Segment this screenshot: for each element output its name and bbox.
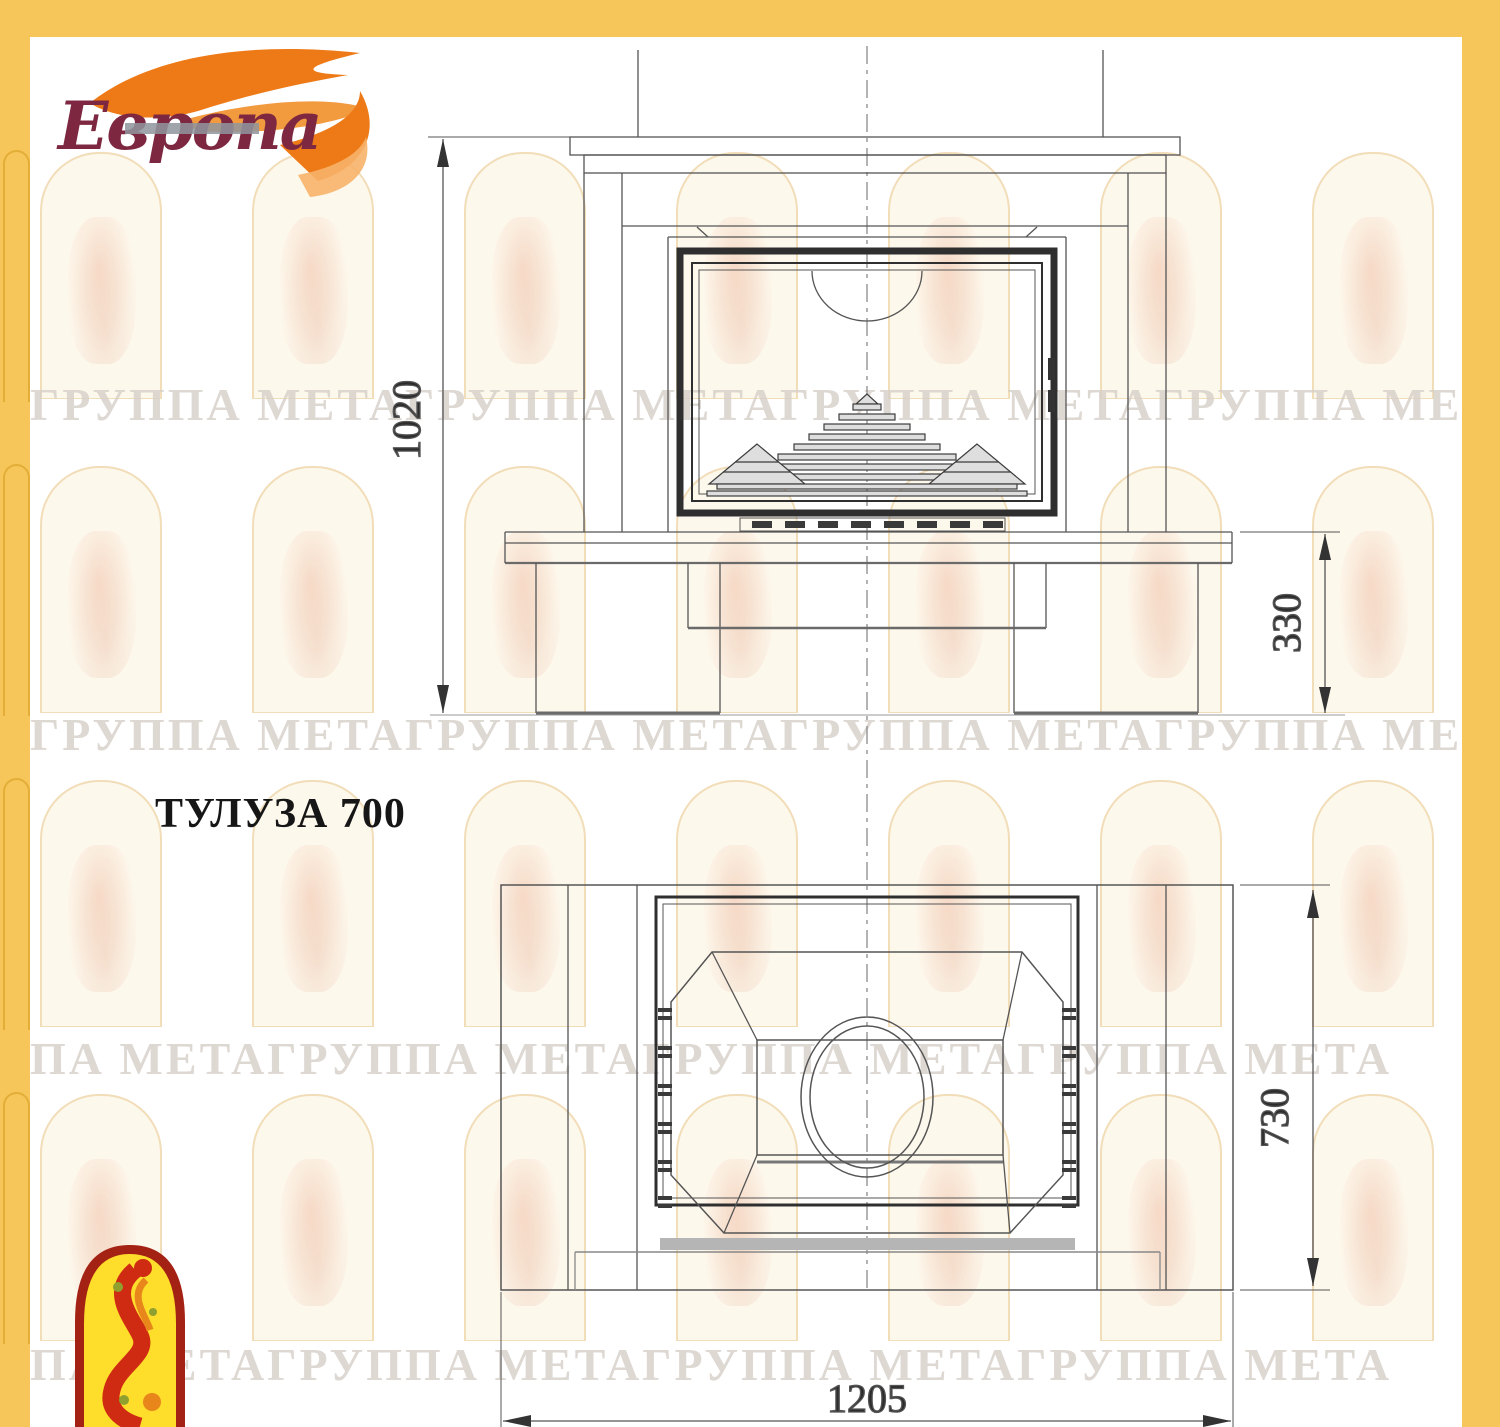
watermark-arch [1312, 1094, 1434, 1341]
border-arch-ornament [3, 778, 30, 1030]
watermark-arch [252, 1094, 374, 1341]
watermark-arch [1100, 152, 1222, 399]
watermark-arch [464, 466, 586, 713]
watermark-arch [888, 466, 1010, 713]
watermark-arch [1312, 152, 1434, 399]
border-arch-ornament [3, 464, 30, 716]
page-border-right [1462, 0, 1500, 1427]
border-arch-ornament [3, 150, 30, 402]
watermark-arch [464, 1094, 586, 1341]
watermark-arch [464, 152, 586, 399]
page-border-top [0, 0, 1500, 37]
watermark-text-row: ПА МЕТАГРУППА МЕТАГРУППА МЕТАГРУППА МЕТА [30, 1032, 1462, 1084]
watermark-arch [252, 466, 374, 713]
watermark-arch [676, 466, 798, 713]
watermark-arch [1312, 466, 1434, 713]
watermark-arch [1100, 1094, 1222, 1341]
watermark-arch [888, 780, 1010, 1027]
watermark-arch [676, 152, 798, 399]
watermark-arch [1100, 780, 1222, 1027]
watermark-layer: ГРУППА МЕТАГРУППА МЕТАГРУППА МЕТАГРУППА … [30, 37, 1462, 1427]
border-arch-ornament [3, 1092, 30, 1344]
watermark-arch [1312, 780, 1434, 1027]
firebird-emblem [0, 0, 220, 1427]
page: { "palette": { "border": "#F6C65A", "lin… [0, 0, 1500, 1427]
watermark-arch [676, 1094, 798, 1341]
watermark-arch [888, 1094, 1010, 1341]
watermark-arch [888, 152, 1010, 399]
watermark-arch [676, 780, 798, 1027]
watermark-text-row: ГРУППА МЕТАГРУППА МЕТАГРУППА МЕТАГРУППА … [30, 708, 1462, 760]
watermark-arch [464, 780, 586, 1027]
watermark-arch [1100, 466, 1222, 713]
watermark-text-row: ГРУППА МЕТАГРУППА МЕТАГРУППА МЕТАГРУППА … [30, 378, 1462, 430]
watermark-text-row: ПА МЕТАГРУППА МЕТАГРУППА МЕТАГРУППА МЕТА [30, 1338, 1462, 1390]
